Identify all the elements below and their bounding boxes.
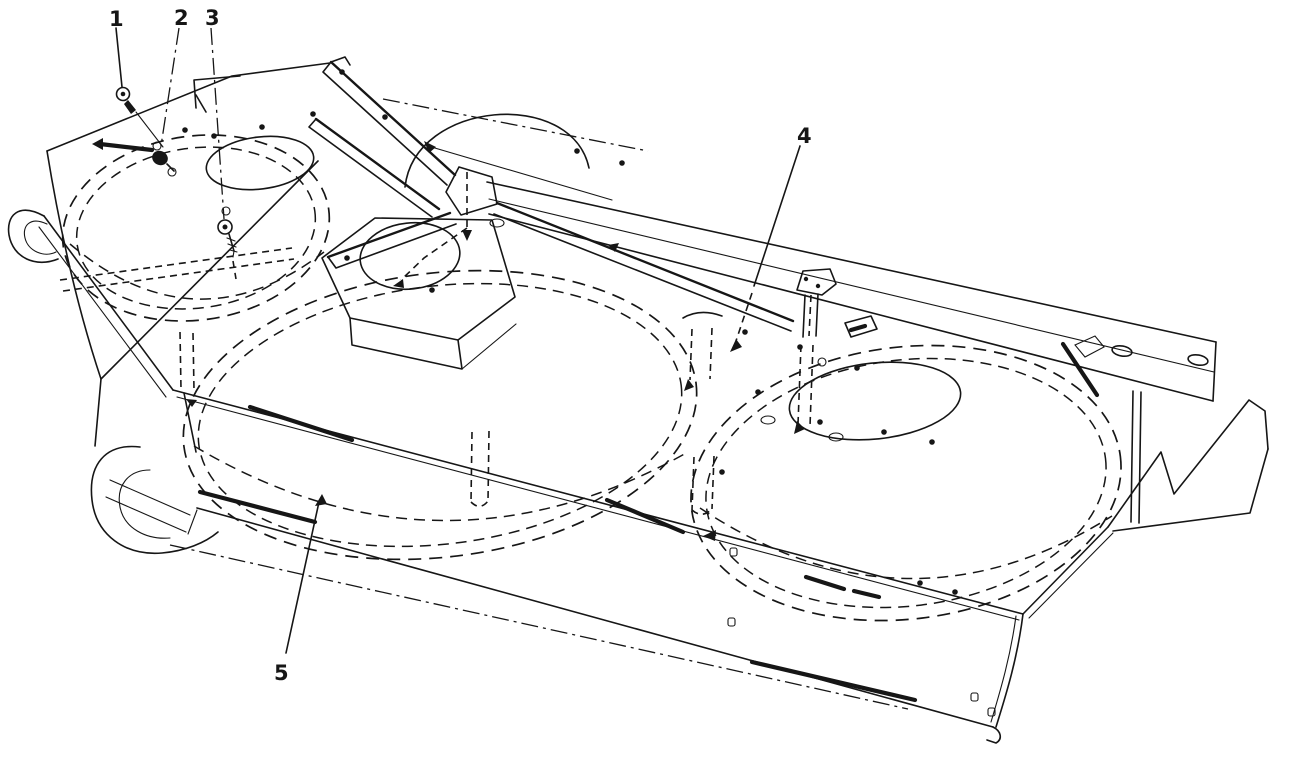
callout-3-label: 3 <box>205 6 220 30</box>
screw-part-1 <box>117 88 164 148</box>
callout-1-leader <box>116 28 122 87</box>
hanger-braces <box>194 57 793 331</box>
blade-circle-right <box>675 322 1137 645</box>
callout-2-label: 2 <box>174 6 189 30</box>
callout-1: 1 <box>109 7 124 87</box>
callout-2-leader <box>161 28 179 146</box>
screw-part-3 <box>218 220 237 279</box>
blade-circle-left <box>51 118 342 338</box>
callout-4-label: 4 <box>797 124 812 148</box>
rear-strut <box>1131 391 1141 523</box>
deck-holes <box>168 69 995 716</box>
callout-4-leader <box>754 146 800 286</box>
callout-5-leader <box>286 502 319 653</box>
callout-3: 3 <box>205 6 224 219</box>
callout-1-label: 1 <box>109 7 124 31</box>
callout-5: 5 <box>274 494 327 685</box>
hanger-hook <box>9 210 58 262</box>
spindle-openings <box>203 114 964 447</box>
front-roller <box>91 447 218 554</box>
callout-5-label: 5 <box>274 661 289 685</box>
rear-rail <box>487 182 1216 401</box>
parts-diagram-canvas: 1 2 3 4 5 <box>0 0 1291 758</box>
callout-3-leader <box>211 28 224 219</box>
parts-diagram: 1 2 3 4 5 <box>0 0 1291 758</box>
center-lines <box>170 99 908 709</box>
center-platform <box>322 218 516 369</box>
hidden-posts <box>60 172 722 514</box>
blade-circle-middle <box>167 243 714 588</box>
callout-2: 2 <box>161 6 189 146</box>
deck-outline <box>9 63 1268 743</box>
